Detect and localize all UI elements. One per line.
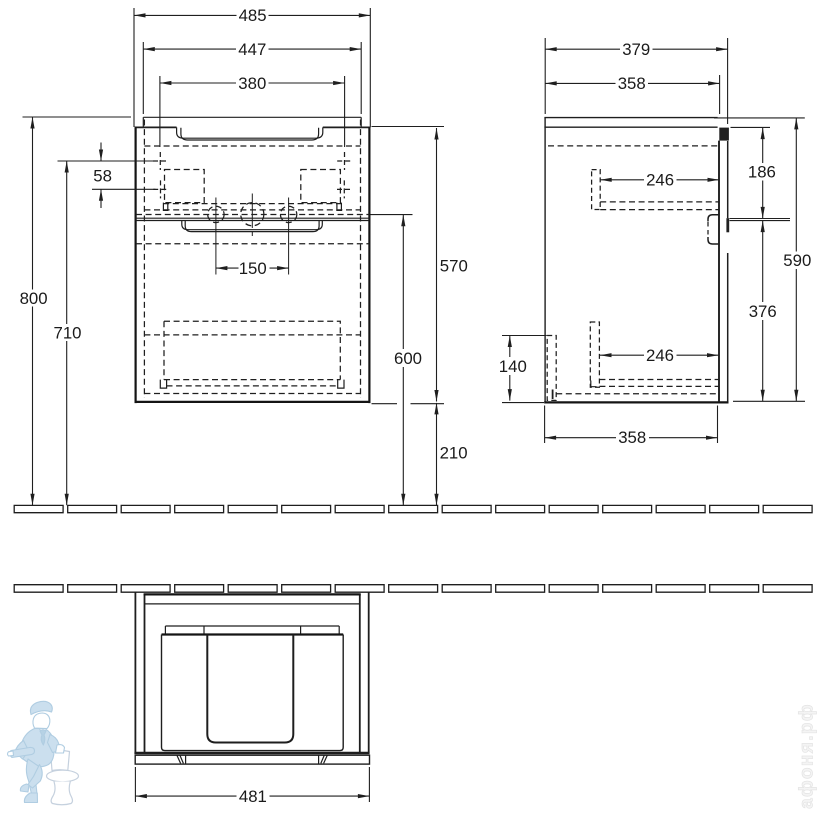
svg-text:600: 600 [394, 349, 422, 368]
svg-text:570: 570 [440, 256, 468, 275]
svg-text:376: 376 [749, 302, 777, 321]
svg-text:379: 379 [622, 40, 650, 59]
svg-text:481: 481 [239, 787, 267, 806]
svg-text:246: 246 [646, 171, 674, 190]
svg-text:150: 150 [239, 259, 267, 278]
svg-text:358: 358 [618, 428, 646, 447]
svg-text:58: 58 [93, 166, 112, 185]
svg-text:800: 800 [20, 289, 48, 308]
svg-text:358: 358 [618, 74, 646, 93]
svg-text:710: 710 [54, 323, 82, 342]
svg-text:447: 447 [238, 40, 266, 59]
svg-text:140: 140 [499, 357, 527, 376]
svg-text:380: 380 [238, 74, 266, 93]
svg-text:афоня.рф: афоня.рф [797, 703, 818, 809]
svg-text:590: 590 [783, 251, 811, 270]
svg-text:485: 485 [239, 6, 267, 25]
svg-text:210: 210 [440, 443, 468, 462]
svg-text:186: 186 [748, 163, 776, 182]
svg-text:246: 246 [646, 346, 674, 365]
